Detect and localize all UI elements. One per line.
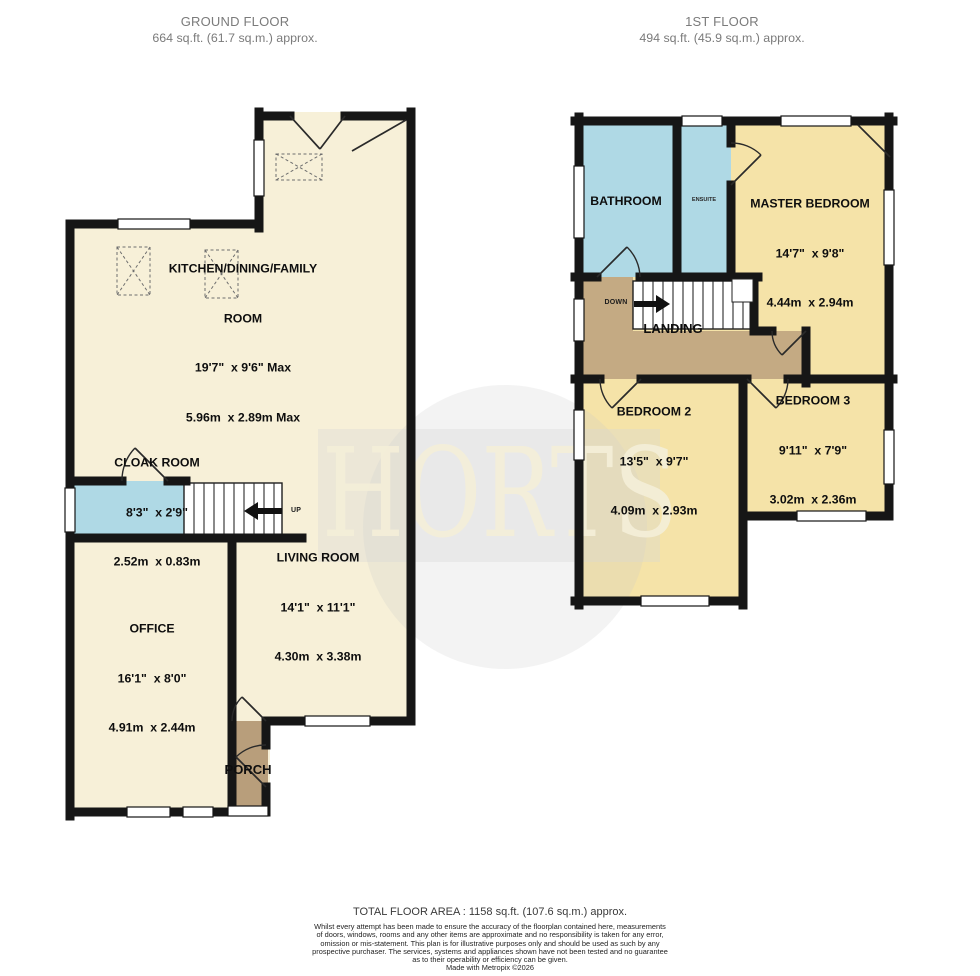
first-floor-header: 1ST FLOOR 494 sq.ft. (45.9 sq.m.) approx…	[639, 14, 804, 45]
bedroom2-imperial: 13'5" x 9'7"	[611, 453, 698, 470]
bedroom2-side-window	[574, 410, 584, 460]
living-imperial: 14'1" x 11'1"	[275, 599, 362, 616]
bedroom3-imperial: 9'11" x 7'9"	[770, 442, 857, 459]
room-label-bathroom: BATHROOM	[590, 193, 662, 210]
bedroom3-metric: 3.02m x 2.36m	[770, 491, 857, 508]
kitchen-name: KITCHEN/DINING/FAMILY	[169, 261, 317, 278]
stairs-up-label: UP	[291, 507, 301, 515]
living-window	[305, 716, 370, 726]
down-arrow-shaft	[634, 301, 658, 307]
office-imperial: 16'1" x 8'0"	[109, 670, 196, 687]
room-label-office: OFFICE 16'1" x 8'0" 4.91m x 2.44m	[109, 587, 196, 769]
porch-front-door	[228, 806, 268, 816]
bedroom3-side-window	[884, 430, 894, 484]
kitchen-side-window	[254, 140, 264, 196]
bedroom2-name: BEDROOM 2	[611, 403, 698, 420]
room-label-porch: PORCH	[225, 762, 272, 779]
metropix-credit: Made with Metropix ©2026	[0, 964, 980, 972]
master-imperial: 14'7" x 9'8"	[750, 245, 870, 262]
footer: TOTAL FLOOR AREA : 1158 sq.ft. (107.6 sq…	[0, 906, 980, 973]
ground-floor-header: GROUND FLOOR 664 sq.ft. (61.7 sq.m.) app…	[152, 14, 317, 45]
bedroom2-window	[641, 596, 709, 606]
room-label-landing: LANDING	[643, 321, 702, 338]
kitchen-imperial: 19'7" x 9'6" Max	[169, 360, 317, 377]
master-metric: 4.44m x 2.94m	[750, 294, 870, 311]
room-label-cloak: CLOAK ROOM 8'3" x 2'9" 2.52m x 0.83m	[114, 421, 201, 603]
stairs-down-label: DOWN	[605, 299, 628, 307]
ground-floor-area: 664 sq.ft. (61.7 sq.m.) approx.	[152, 31, 317, 45]
landing-window	[574, 299, 584, 341]
office-window-2	[183, 807, 213, 817]
bathroom-window	[574, 166, 584, 238]
master-top-window	[781, 116, 851, 126]
room-label-bedroom3: BEDROOM 3 9'11" x 7'9" 3.02m x 2.36m	[770, 359, 857, 541]
first-floor-title: 1ST FLOOR	[639, 14, 804, 29]
living-name: LIVING ROOM	[275, 549, 362, 566]
master-name: MASTER BEDROOM	[750, 195, 870, 212]
cloak-name: CLOAK ROOM	[114, 454, 201, 471]
room-label-master: MASTER BEDROOM 14'7" x 9'8" 4.44m x 2.94…	[750, 162, 870, 344]
room-label-bedroom2: BEDROOM 2 13'5" x 9'7" 4.09m x 2.93m	[611, 370, 698, 552]
bedroom2-metric: 4.09m x 2.93m	[611, 502, 698, 519]
floorplan-page: GROUND FLOOR 664 sq.ft. (61.7 sq.m.) app…	[0, 0, 980, 976]
total-floor-area: TOTAL FLOOR AREA : 1158 sq.ft. (107.6 sq…	[0, 906, 980, 918]
bedroom3-name: BEDROOM 3	[770, 392, 857, 409]
living-metric: 4.30m x 3.38m	[275, 648, 362, 665]
office-window-1	[127, 807, 170, 817]
room-label-ensuite: ENSUITE	[692, 197, 716, 203]
first-floor-area: 494 sq.ft. (45.9 sq.m.) approx.	[639, 31, 804, 45]
master-side-window	[884, 190, 894, 265]
cloak-imperial: 8'3" x 2'9"	[114, 504, 201, 521]
room-label-living: LIVING ROOM 14'1" x 11'1" 4.30m x 3.38m	[275, 516, 362, 698]
top-window-1	[682, 116, 722, 126]
cloak-window	[65, 488, 75, 532]
office-name: OFFICE	[109, 620, 196, 637]
ground-floor-title: GROUND FLOOR	[152, 14, 317, 29]
up-arrow-shaft	[256, 508, 282, 514]
office-metric: 4.91m x 2.44m	[109, 719, 196, 736]
cloak-metric: 2.52m x 0.83m	[114, 553, 201, 570]
kitchen-name2: ROOM	[169, 310, 317, 327]
